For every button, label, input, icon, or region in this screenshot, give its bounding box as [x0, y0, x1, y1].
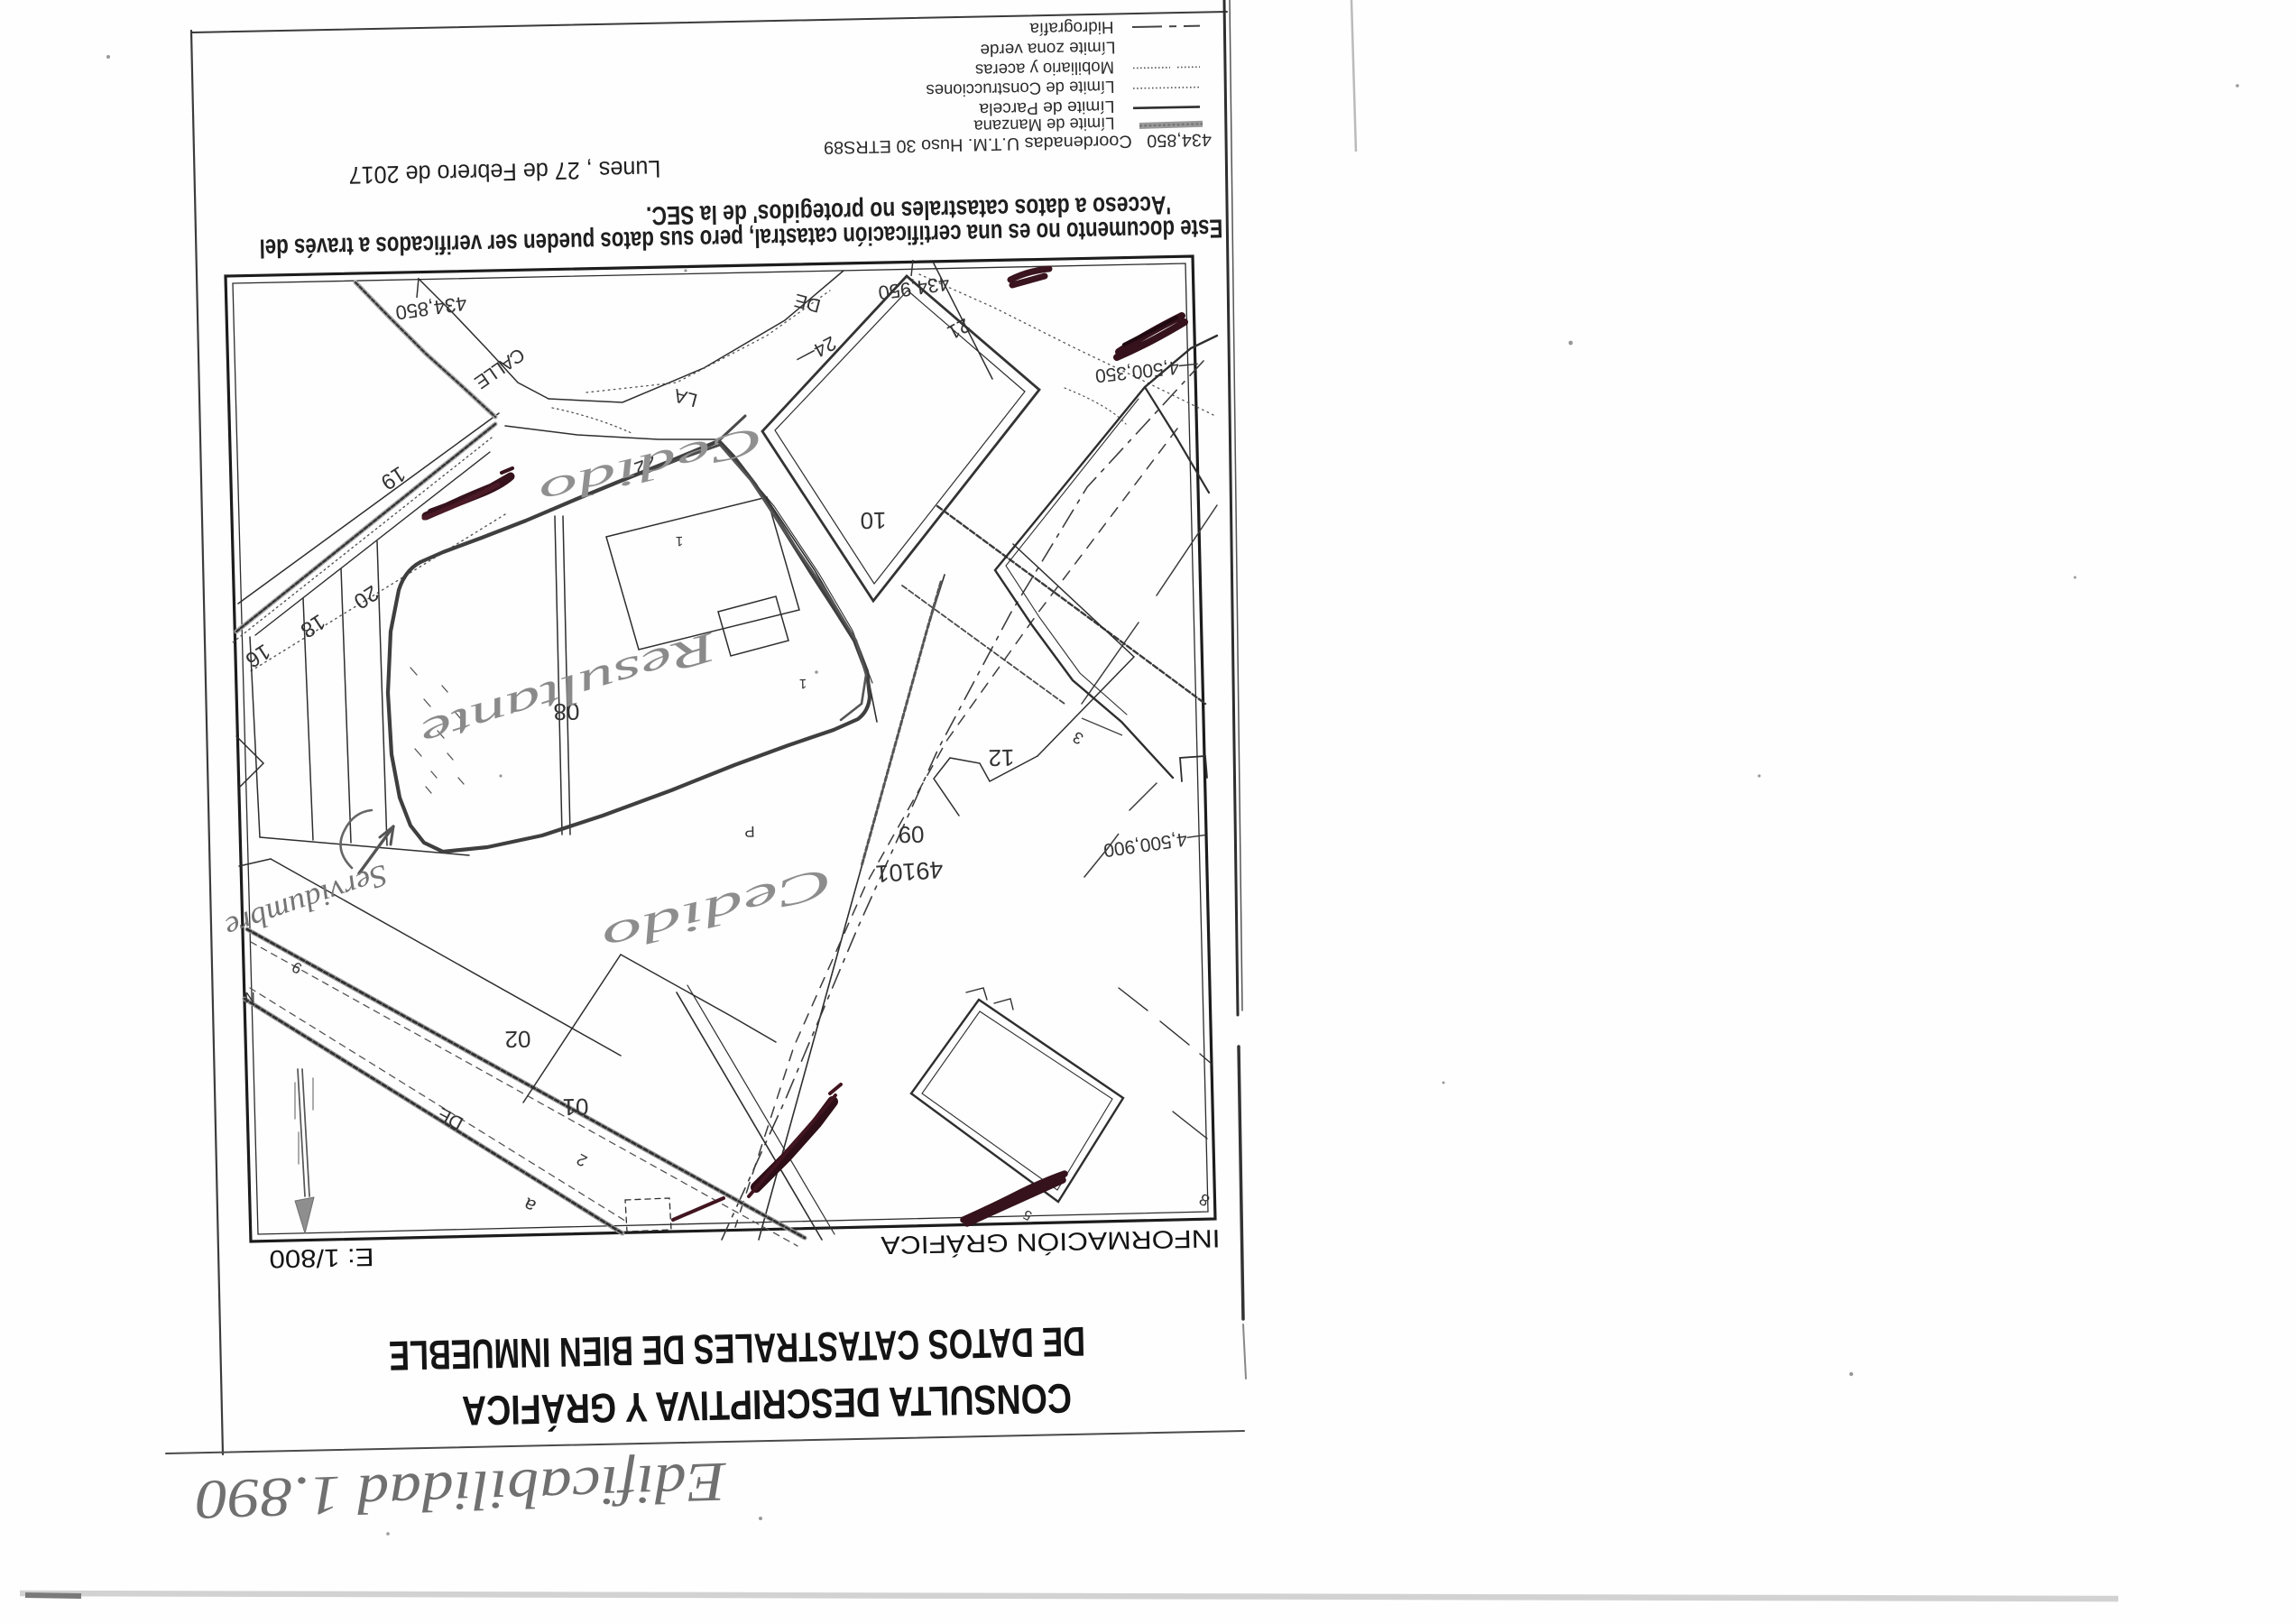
svg-text:01: 01: [562, 1093, 589, 1121]
svg-text:12: 12: [988, 744, 1015, 772]
svg-text:Límite zona verde: Límite zona verde: [980, 37, 1115, 59]
svg-text:10: 10: [860, 507, 887, 535]
svg-text:1: 1: [676, 533, 684, 549]
svg-text:Límite de Manzana: Límite de Manzana: [973, 113, 1115, 134]
svg-text:Hidrografía: Hidrografía: [1029, 17, 1114, 38]
svg-text:09: 09: [898, 821, 925, 849]
svg-text:E: 1/800: E: 1/800: [269, 1243, 374, 1273]
svg-text:49101: 49101: [874, 855, 944, 887]
svg-text:1: 1: [799, 676, 807, 691]
svg-text:Mobiliario y aceras: Mobiliario y aceras: [975, 57, 1114, 78]
svg-text:P: P: [744, 823, 755, 840]
svg-text:02: 02: [504, 1026, 531, 1054]
svg-text:N: N: [244, 989, 255, 1004]
svg-text:Límite de Construcciones: Límite de Construcciones: [926, 77, 1114, 99]
